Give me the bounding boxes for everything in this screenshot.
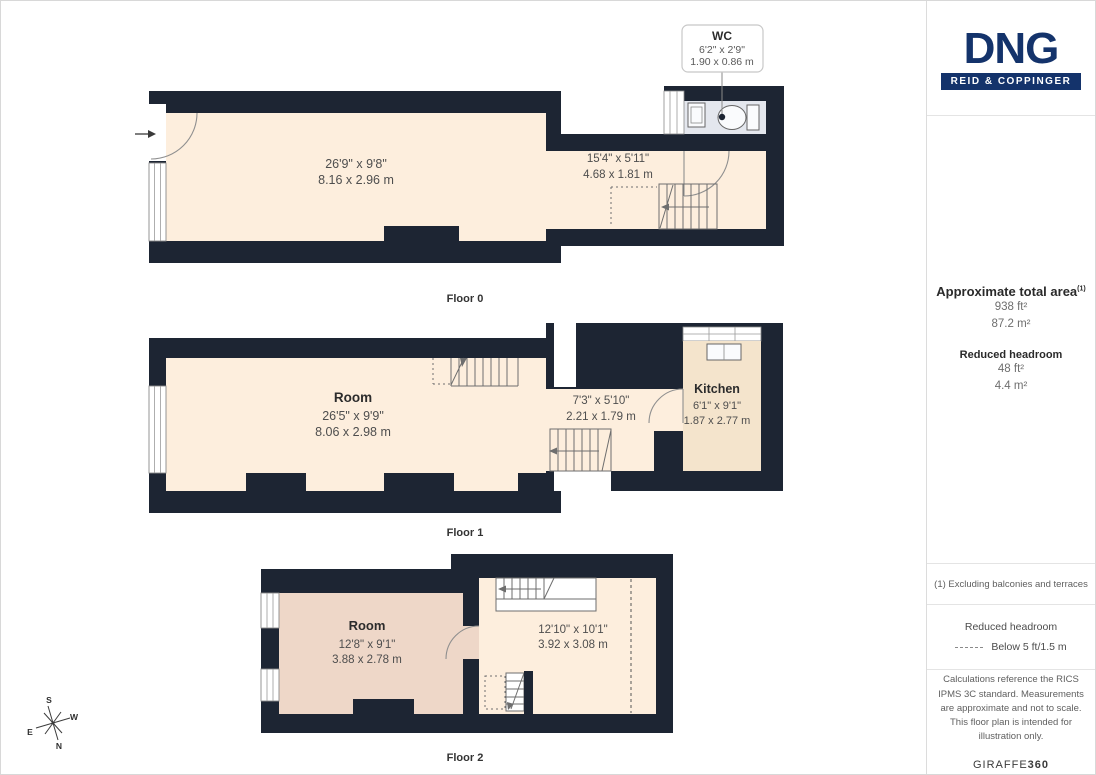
- floor2-room-name: Room: [349, 618, 386, 633]
- giraffe360-name: GIRAFFE: [973, 759, 1028, 771]
- kitchen-window: [683, 327, 761, 341]
- reduced-headroom-ft: 48 ft²: [998, 361, 1024, 378]
- wc-callout-metric: 1.90 x 0.86 m: [690, 56, 754, 68]
- agency-logo-section: DNG REID & COPPINGER: [927, 1, 1095, 116]
- compass-n-label: N: [56, 741, 62, 751]
- legend-section: Reduced headroom Below 5 ft/1.5 m: [927, 605, 1095, 670]
- floor1-room-metric: 8.06 x 2.98 m: [315, 425, 391, 439]
- floor1-left-window: [149, 386, 166, 473]
- reduced-headroom-dash-sample: [955, 647, 983, 648]
- floor0-room-metric: 8.16 x 2.96 m: [318, 173, 394, 187]
- floor0-top-window: [664, 91, 684, 134]
- floor2-left-window-top: [261, 593, 279, 628]
- wc-callout-imperial: 6'2" x 2'9": [699, 44, 745, 56]
- floor1-kitchen-imperial: 6'1" x 9'1": [693, 400, 741, 412]
- compass-icon: S W E N: [27, 695, 79, 751]
- floor0-left-window: [149, 163, 166, 241]
- kitchen-sink-icon: [707, 344, 741, 360]
- disclaimer-text: Calculations reference the RICS IPMS 3C …: [935, 673, 1087, 744]
- floor2-left-window-bottom: [261, 669, 279, 701]
- floorplan-svg: 26'9" x 9'8" 8.16 x 2.96 m 15'4" x 5'11"…: [1, 1, 926, 774]
- floor0-hall-metric: 4.68 x 1.81 m: [583, 169, 653, 181]
- floor-0-label: Floor 0: [447, 293, 484, 305]
- floor-1-label: Floor 1: [447, 527, 484, 539]
- compass-w-label: W: [70, 712, 79, 722]
- giraffe360-logo: GIRAFFE360: [973, 759, 1049, 771]
- floor1-corridor-imperial: 7'3" x 5'10": [573, 395, 630, 407]
- compass-e-label: E: [27, 727, 33, 737]
- area-footnote: (1) Excluding balconies and terraces: [934, 579, 1088, 590]
- floorplan-canvas: 26'9" x 9'8" 8.16 x 2.96 m 15'4" x 5'11"…: [1, 1, 926, 774]
- floorplan-page: 26'9" x 9'8" 8.16 x 2.96 m 15'4" x 5'11"…: [0, 0, 1096, 775]
- area-summary-section: Approximate total area(1) 938 ft² 87.2 m…: [927, 116, 1095, 564]
- floor1-room-imperial: 26'5" x 9'9": [322, 409, 384, 423]
- floor-0-plan: 26'9" x 9'8" 8.16 x 2.96 m 15'4" x 5'11"…: [135, 25, 784, 305]
- compass-s-label: S: [46, 695, 52, 705]
- total-area-title: Approximate total area(1): [936, 284, 1085, 299]
- floor1-kitchen-metric: 1.87 x 2.77 m: [684, 415, 751, 427]
- wc-callout-title: WC: [712, 29, 732, 43]
- floor1-room-name: Room: [334, 390, 372, 405]
- floor0-room-imperial: 26'9" x 9'8": [325, 157, 387, 171]
- total-area-note-ref: (1): [1077, 285, 1086, 292]
- sink-icon: [688, 103, 705, 127]
- total-area-label: Approximate total area: [936, 284, 1077, 299]
- floor2-room-metric: 3.88 x 2.78 m: [332, 654, 402, 666]
- total-area-ft: 938 ft²: [995, 299, 1028, 316]
- footnote-section: (1) Excluding balconies and terraces: [927, 564, 1095, 605]
- floor0-hall-imperial: 15'4" x 5'11": [587, 153, 649, 165]
- dng-logo: DNG: [964, 27, 1059, 71]
- reduced-headroom-m: 4.4 m²: [995, 378, 1028, 395]
- disclaimer-section: Calculations reference the RICS IPMS 3C …: [927, 670, 1095, 774]
- floor-2-label: Floor 2: [447, 752, 484, 764]
- giraffe360-suffix: 360: [1028, 759, 1049, 771]
- info-sidebar: DNG REID & COPPINGER Approximate total a…: [926, 1, 1095, 774]
- floor2-room-imperial: 12'8" x 9'1": [339, 639, 396, 651]
- floor1-corridor-metric: 2.21 x 1.79 m: [566, 411, 636, 423]
- legend-item-label: Below 5 ft/1.5 m: [991, 641, 1066, 653]
- reduced-headroom-label: Reduced headroom: [960, 349, 1063, 361]
- legend-title: Reduced headroom: [965, 621, 1057, 633]
- floor1-kitchen-name: Kitchen: [694, 382, 740, 396]
- dng-logo-tagline: REID & COPPINGER: [941, 73, 1082, 90]
- total-area-m: 87.2 m²: [992, 316, 1031, 333]
- floor-1-plan: Room 26'5" x 9'9" 8.06 x 2.98 m 7'3" x 5…: [149, 323, 783, 539]
- floor0-hallway-area: [546, 151, 766, 229]
- floor2-upper-stairs: [496, 578, 596, 611]
- floor-2-plan: Room 12'8" x 9'1" 3.88 x 2.78 m 12'10" x…: [261, 554, 673, 764]
- floor2-landing-imperial: 12'10" x 10'1": [538, 624, 607, 636]
- floor2-landing-metric: 3.92 x 3.08 m: [538, 639, 608, 651]
